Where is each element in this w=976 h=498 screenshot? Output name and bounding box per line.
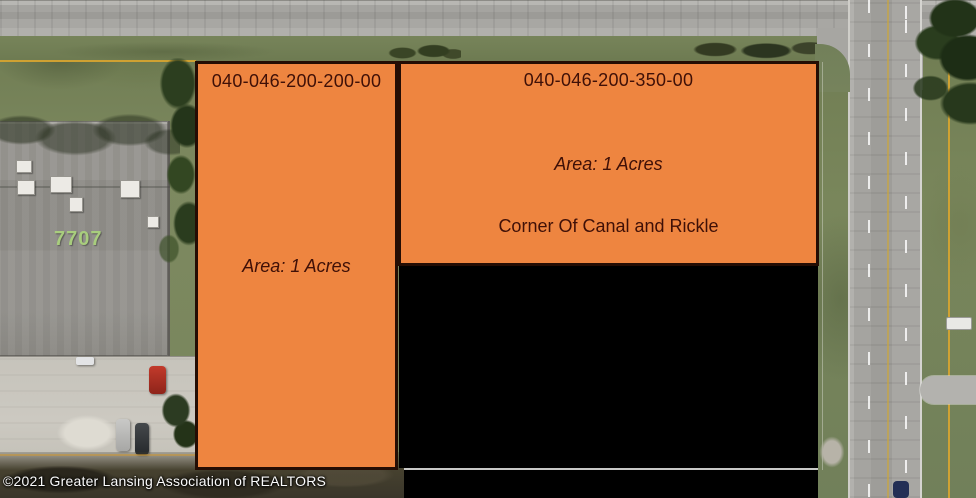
blacked-out-parcel xyxy=(399,266,818,468)
shrub-patch xyxy=(383,42,461,62)
tree-canopy xyxy=(906,0,976,152)
vehicle-white xyxy=(76,357,94,365)
sidewalk-patch xyxy=(818,434,846,470)
aerial-parcel-map: 7707 040-046-200-200-00 Area: 1 Acres 04… xyxy=(0,0,976,498)
utility-line xyxy=(822,62,823,470)
vehicle-blue xyxy=(893,481,909,498)
parcel-area-label: Area: 1 Acres xyxy=(401,153,816,175)
vehicle-silver xyxy=(116,419,130,451)
tree-canopy xyxy=(136,58,196,270)
parcel-boundary-line-yellow xyxy=(0,454,196,456)
lane-marking xyxy=(868,0,870,498)
driveway-entrance xyxy=(920,376,976,404)
rooftop-hvac-unit xyxy=(17,180,35,195)
parcel-overlay-2: 040-046-200-350-00 Area: 1 Acres Corner … xyxy=(398,61,819,266)
parcel-id-label: 040-046-200-200-00 xyxy=(198,70,395,92)
vehicle-white xyxy=(946,317,972,330)
copyright-watermark: ©2021 Greater Lansing Association of REA… xyxy=(3,473,403,489)
building-number-label: 7707 xyxy=(54,228,114,251)
center-line-yellow xyxy=(887,0,889,498)
pavement-patch xyxy=(52,412,122,454)
shrub-patch xyxy=(686,37,832,62)
blacked-out-parcel-lower xyxy=(404,468,818,498)
tree-canopy xyxy=(146,390,196,458)
parcel-overlay-1: 040-046-200-200-00 Area: 1 Acres xyxy=(195,61,398,470)
parcel-location-label: Corner Of Canal and Rickle xyxy=(401,215,816,237)
rooftop-hvac-unit xyxy=(69,197,83,212)
rooftop-hvac-unit xyxy=(16,160,32,173)
rooftop-hvac-unit xyxy=(50,176,72,193)
parcel-id-label: 040-046-200-350-00 xyxy=(401,69,816,91)
parcel-area-label: Area: 1 Acres xyxy=(198,255,395,277)
